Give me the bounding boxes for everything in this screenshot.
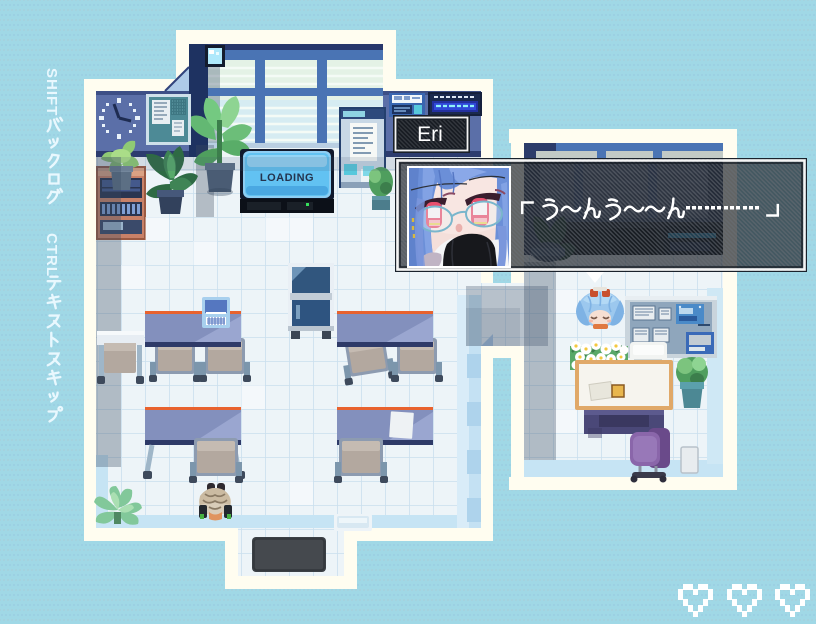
svg-text:CTRL: CTRL (43, 233, 60, 277)
svg-text:SHIFT: SHIFT (43, 68, 60, 116)
svg-text:LOADING: LOADING (260, 172, 314, 184)
svg-text:Eri: Eri (417, 123, 443, 146)
